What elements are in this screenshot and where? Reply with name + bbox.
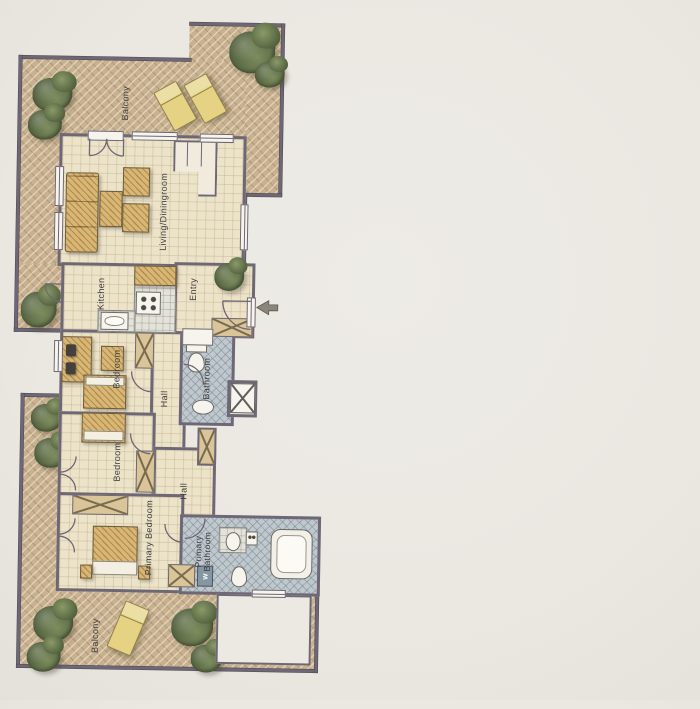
toilet-tank	[186, 344, 207, 352]
label-bedroom-2: Bedroom	[112, 443, 123, 482]
entry-arrow-icon	[257, 301, 278, 315]
label-bedroom-1: Bedroom	[111, 350, 122, 389]
entry-door-gap	[246, 297, 256, 327]
label-primary-bathroom: Primary Bathroom	[194, 525, 214, 577]
window	[54, 340, 64, 372]
bed-pillows	[83, 431, 123, 442]
label-hall-1: Hall	[159, 390, 169, 407]
kitchen-cabinet	[134, 265, 176, 286]
toilet	[231, 566, 247, 587]
label-entry: Entry	[188, 278, 198, 301]
label-bathroom: Bathroom	[201, 358, 212, 400]
label-balcony-bottom: Balcony	[90, 618, 101, 653]
label-kitchen: Kitchen	[96, 277, 107, 310]
wardrobe	[135, 332, 155, 368]
window	[200, 133, 234, 143]
bathtub	[270, 529, 313, 580]
sofa	[65, 172, 99, 253]
bathroom-sink	[192, 399, 214, 414]
armchair	[122, 203, 150, 232]
railing	[14, 328, 63, 332]
floorplan-photo: W Balcony Living/Dining	[0, 0, 700, 700]
desk-chair	[66, 344, 76, 356]
railing	[244, 193, 282, 197]
stove	[136, 291, 161, 314]
wardrobe	[136, 450, 156, 492]
bathroom-counter	[182, 328, 213, 346]
shower	[230, 383, 256, 413]
label-living-diningroom: Living/Diningroom	[158, 173, 169, 251]
window	[252, 589, 286, 598]
lower-void-area	[216, 594, 312, 666]
coffee-table	[99, 191, 123, 227]
balcony-door-gap	[88, 131, 124, 142]
kitchen-sink	[100, 312, 128, 330]
nightstand	[80, 564, 92, 578]
bed-pillows	[92, 561, 137, 576]
window	[240, 204, 249, 250]
railing	[314, 595, 318, 673]
label-balcony-top: Balcony	[120, 86, 131, 121]
wardrobe	[72, 494, 128, 515]
desk-chair	[66, 362, 76, 374]
fixture-taps	[246, 531, 258, 545]
window	[54, 212, 64, 250]
floorplan: W Balcony Living/Dining	[0, 0, 700, 709]
label-hall-2: Hall	[178, 483, 188, 500]
armchair	[123, 167, 151, 196]
window	[54, 166, 64, 206]
label-primary-bedroom: Primary Bedroom	[143, 500, 154, 575]
hall-closet	[197, 427, 217, 465]
bathroom-closet	[168, 564, 195, 587]
window	[132, 131, 178, 141]
